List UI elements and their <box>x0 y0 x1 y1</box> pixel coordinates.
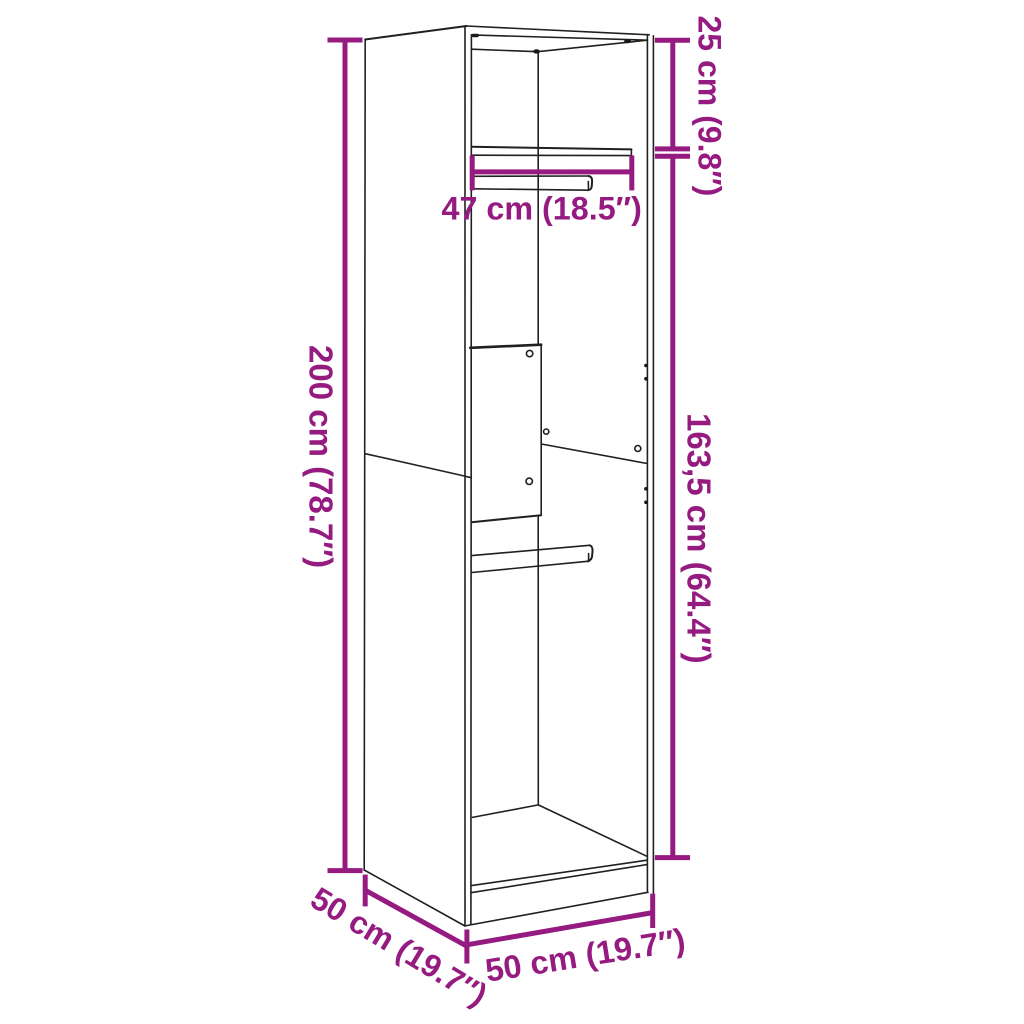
svg-text:163,5 cm (64.4″): 163,5 cm (64.4″) <box>681 413 718 664</box>
svg-text:25 cm (9.8″): 25 cm (9.8″) <box>692 16 728 197</box>
svg-text:200 cm (78.7″): 200 cm (78.7″) <box>303 345 340 568</box>
svg-text:47 cm (18.5″): 47 cm (18.5″) <box>442 191 642 227</box>
